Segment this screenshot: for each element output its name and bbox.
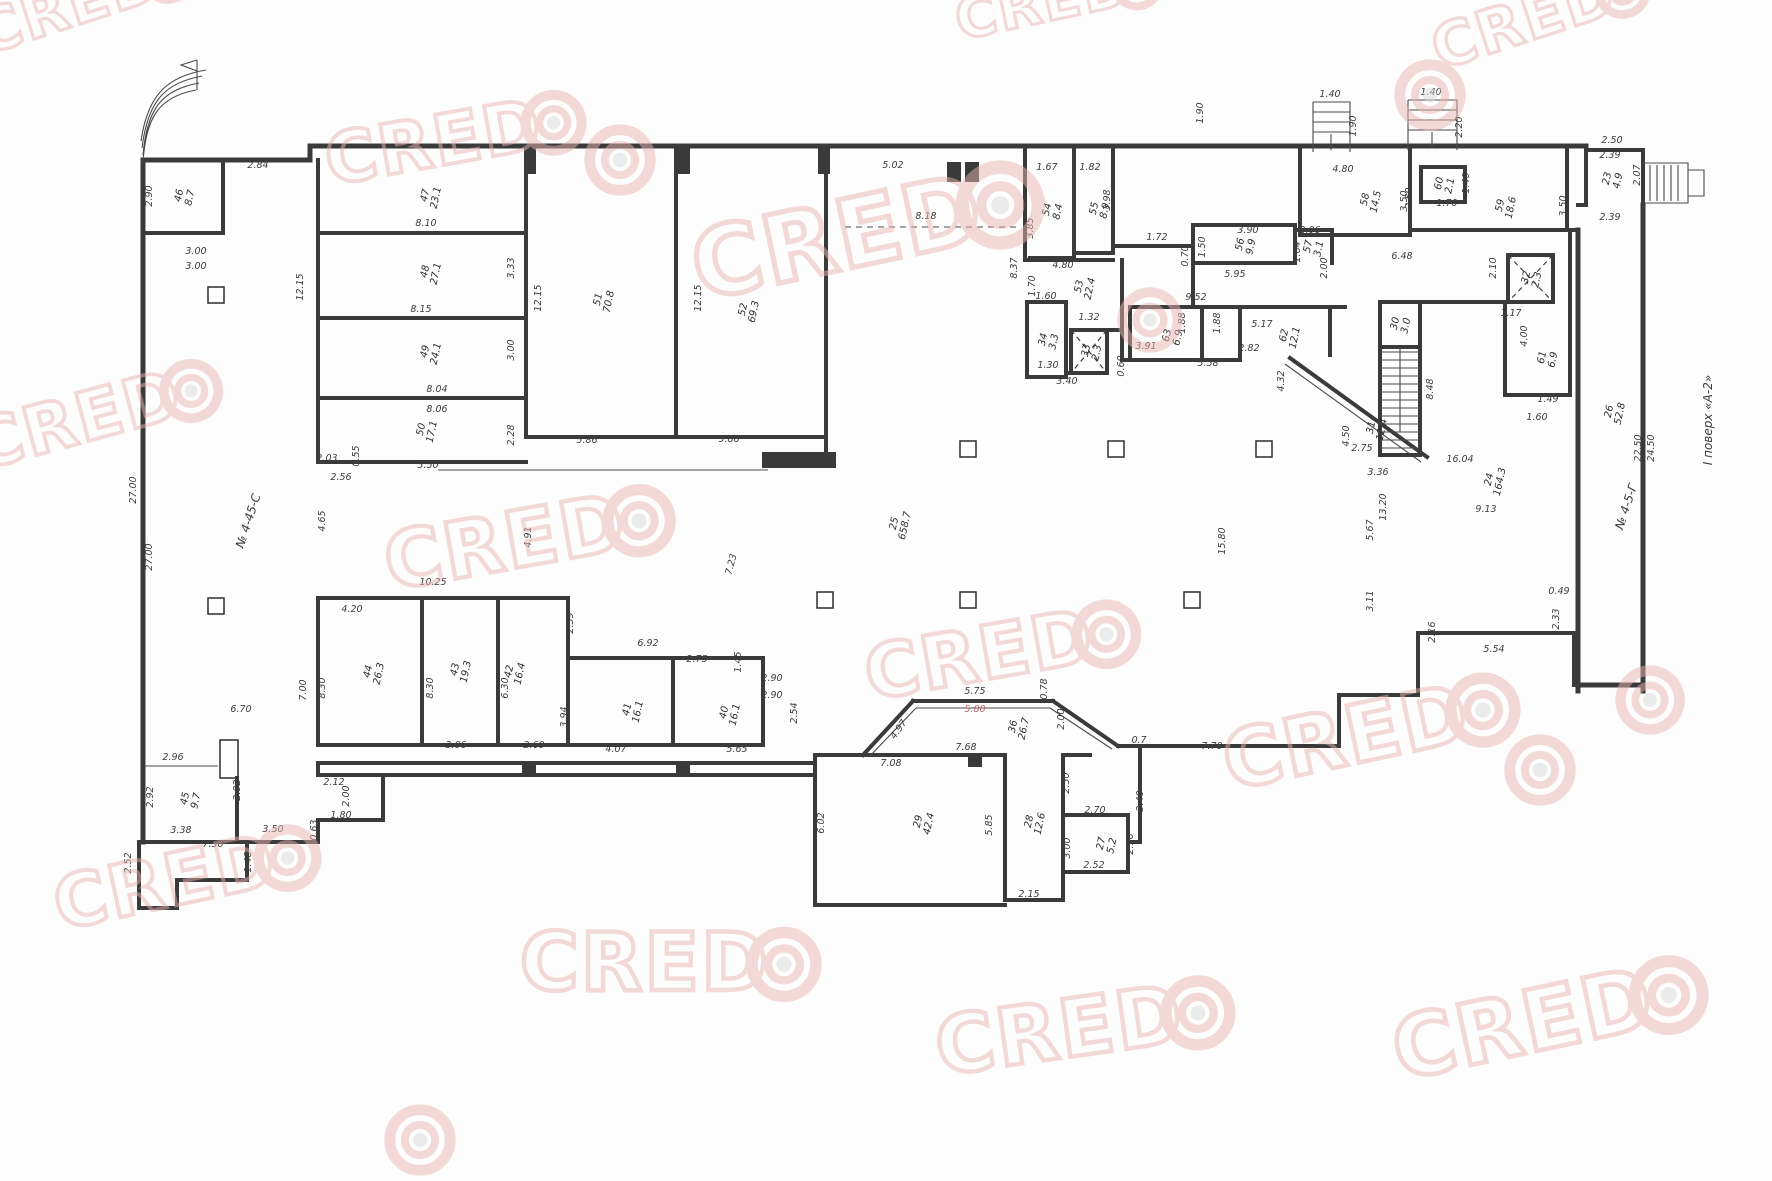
dimension-label: 2.92 xyxy=(145,786,156,807)
svg-text:CRED: CRED xyxy=(520,916,769,1009)
room-label: 275.2 xyxy=(1095,835,1120,855)
dimension-label: 2.75 xyxy=(686,654,707,665)
watermark-logo: CRED xyxy=(1384,938,1712,1100)
svg-text:CRED: CRED xyxy=(930,967,1190,1094)
dimension-label: 3.36 xyxy=(1367,467,1388,478)
room-label: 4827.1 xyxy=(418,259,444,285)
room-label: 5814.5 xyxy=(1358,187,1384,213)
room-label: 4723.1 xyxy=(418,183,444,209)
dimension-label: 7.23 xyxy=(724,553,740,576)
dimension-label: 7.68 xyxy=(955,742,976,753)
watermark-layer: CREDCREDCREDCREDCREDCREDCREDCREDCREDCRED… xyxy=(0,0,1712,1170)
room-label: 4319.3 xyxy=(448,657,474,683)
dimension-label: 24.50 xyxy=(1646,434,1657,461)
room-label: 3626.7 xyxy=(1006,714,1032,741)
room-label: 5017.1 xyxy=(414,417,440,443)
watermark-target xyxy=(1400,65,1460,125)
room-label: 5170.8 xyxy=(591,287,617,313)
dimension-label: 1.17 xyxy=(1500,308,1521,319)
plan-annotation: № 4-5-Г xyxy=(1612,481,1641,532)
dimension-label: 3.00 xyxy=(1062,837,1073,858)
dimension-label: 1.70 xyxy=(1436,198,1457,209)
dimension-label: 6.48 xyxy=(1391,251,1412,262)
dimension-label: 4.32 xyxy=(1276,370,1287,391)
structural-column xyxy=(1256,441,1272,457)
dimension-label: 2.82 xyxy=(1238,343,1259,354)
dimension-label: 12.15 xyxy=(295,273,306,300)
dimension-label: 2.90 xyxy=(761,690,782,701)
watermark-logo: CRED xyxy=(858,586,1143,718)
structural-column xyxy=(208,287,224,303)
dimension-label: 4.80 xyxy=(1052,260,1073,271)
svg-text:CRED: CRED xyxy=(1384,949,1663,1101)
watermark-target xyxy=(390,1110,450,1170)
dimension-label: 1.50 xyxy=(1197,236,1208,257)
dimension-label: 1.32 xyxy=(1078,312,1099,323)
dimension-label: 3.06 xyxy=(445,740,466,751)
dimension-label: 8.04 xyxy=(426,384,447,395)
dimension-label: 2.03 xyxy=(316,453,337,464)
dimension-label: 2.75 xyxy=(1351,443,1372,454)
watermark-target-icon xyxy=(955,160,1045,250)
svg-text:CRED: CRED xyxy=(0,355,190,486)
dimension-label: 2.52 xyxy=(1083,860,1104,871)
dimension-label: 2.06 xyxy=(1299,225,1320,236)
dimension-label: 16.04 xyxy=(1446,454,1473,465)
watermark-logo: CRED xyxy=(1215,656,1524,808)
dimension-label: 27.00 xyxy=(128,476,139,503)
dimension-label: 2.00 xyxy=(1056,708,1067,729)
room-label: 2942.4 xyxy=(911,809,937,835)
plan-annotation: № 4-45-С xyxy=(233,491,264,550)
room-label: 2652.8 xyxy=(1602,399,1628,425)
dimension-label: 0.55 xyxy=(351,445,362,466)
dimension-label: 2.39 xyxy=(1599,150,1620,161)
dimension-label: 8.06 xyxy=(426,404,447,415)
dimension-label: 9.13 xyxy=(1475,504,1496,515)
dimension-label: 1.60 xyxy=(1035,291,1056,302)
room-label: 5918.6 xyxy=(1493,193,1519,219)
dimension-label: 8.30 xyxy=(425,677,436,698)
dimension-label: 2.39 xyxy=(1599,212,1620,223)
svg-text:CRED: CRED xyxy=(378,478,633,609)
dimension-label: 2.10 xyxy=(1488,257,1499,278)
dimension-label: 5.85 xyxy=(984,814,995,835)
dimension-label: 1.60 xyxy=(1526,412,1547,423)
watermark-logo: CRED xyxy=(949,0,1165,54)
watermark-logo: CRED xyxy=(378,470,678,609)
dimension-label: 4.50 xyxy=(1341,425,1352,446)
svg-text:CRED: CRED xyxy=(46,818,284,947)
dimension-label: 2.16 xyxy=(1125,833,1136,854)
dimension-label: 22.50 xyxy=(1633,434,1644,461)
columns-group xyxy=(208,287,1272,614)
room-label: 2812.6 xyxy=(1022,809,1048,835)
watermark-logo: CRED xyxy=(930,961,1236,1094)
room-label: 25658.7 xyxy=(886,508,914,541)
dimension-label: 7.00 xyxy=(298,679,309,700)
dimension-label: 4.07 xyxy=(605,744,626,755)
dimension-label: 1.67 xyxy=(1036,162,1057,173)
room-label: 6212.1 xyxy=(1277,323,1303,349)
dimension-label: 2.70 xyxy=(1084,805,1105,816)
watermark-target-icon xyxy=(1400,65,1460,125)
dimension-label: 3.00 xyxy=(185,261,206,272)
room-label: 602.1 xyxy=(1433,175,1458,195)
dimension-label: 5.54 xyxy=(1483,644,1504,655)
watermark-logo: CRED xyxy=(520,916,816,1009)
dimension-label: 1.40 xyxy=(1319,89,1340,100)
dimension-label: 0.60 xyxy=(1116,355,1127,376)
dimension-label: 5.65 xyxy=(726,744,747,755)
svg-text:CRED: CRED xyxy=(319,83,549,202)
dimension-label: 2.56 xyxy=(330,472,351,483)
dimension-label: 2.00 xyxy=(1319,257,1330,278)
structural-column xyxy=(1184,592,1200,608)
dimension-label: 2.50 xyxy=(1601,135,1622,146)
dimension-label: 15.80 xyxy=(1217,527,1228,554)
watermark-target-icon xyxy=(254,824,322,892)
room-label: 5322.4 xyxy=(1072,274,1098,300)
svg-text:CRED: CRED xyxy=(0,0,169,69)
dimension-label: 2.39 xyxy=(565,612,576,633)
dimension-label: 12.15 xyxy=(533,284,544,311)
svg-text:CRED: CRED xyxy=(682,154,993,323)
dimension-label: 6.92 xyxy=(637,638,658,649)
watermark-target-icon xyxy=(390,1110,450,1170)
dimension-label: 4.00 xyxy=(1519,325,1530,346)
room-label: 24164.3 xyxy=(1481,464,1508,497)
dimension-label: 1.72 xyxy=(1146,232,1167,243)
dimension-label: 2.90 xyxy=(144,185,155,206)
dimension-label: 5.86 xyxy=(576,435,597,446)
dimension-label: 2.60 xyxy=(523,740,544,751)
dimension-label: 9.52 xyxy=(1185,292,1206,303)
dimension-label: 4.20 xyxy=(341,604,362,615)
watermark-logo: CRED xyxy=(0,345,227,486)
dimension-label: 5.86 xyxy=(718,434,739,445)
room-label: 4426.3 xyxy=(361,659,387,685)
dimension-label: 6.30 xyxy=(500,677,511,698)
watermark-target xyxy=(1510,740,1570,800)
dimension-label: 2.33 xyxy=(1551,608,1562,629)
dimension-label: 4.65 xyxy=(317,510,328,531)
watermark-target xyxy=(590,130,650,190)
dimension-label: 5.95 xyxy=(1224,269,1245,280)
dimension-label: 3.00 xyxy=(185,246,206,257)
dimension-label: 3.50 xyxy=(1558,195,1569,216)
dimension-label: 8.37 xyxy=(1009,257,1020,278)
dimension-label: 8.15 xyxy=(410,304,431,315)
dimension-label: 2.92 xyxy=(232,779,243,800)
dimension-label: 3.90 xyxy=(1237,225,1258,236)
dimension-label: 3.33 xyxy=(506,257,517,278)
dimension-label: 5.17 xyxy=(1251,319,1272,330)
floor-plan-page: 2.842.903.003.008.1012.153.338.153.008.0… xyxy=(0,0,1772,1181)
room-label: 322.3 xyxy=(1520,269,1545,289)
dimension-label: 1.40 xyxy=(1461,172,1472,193)
svg-text:CRED: CRED xyxy=(1215,666,1478,809)
dimension-label: 3.50 xyxy=(1399,190,1410,211)
dimension-label: 6.02 xyxy=(816,812,827,833)
dimension-label: 4.80 xyxy=(1332,164,1353,175)
dimension-label: 2.96 xyxy=(162,752,183,763)
structural-column xyxy=(1108,441,1124,457)
dimension-label: 2.54 xyxy=(789,702,800,723)
dimension-label: 8.30 xyxy=(317,677,328,698)
dimension-label: 1.30 xyxy=(1037,360,1058,371)
dimension-label: 3.00 xyxy=(506,339,517,360)
dimension-label: 8.10 xyxy=(415,218,436,229)
dimension-label: 1.90 xyxy=(1195,102,1206,123)
structural-column xyxy=(817,592,833,608)
watermark-target-icon xyxy=(1621,671,1680,730)
structural-column xyxy=(960,592,976,608)
dimension-label: 7.08 xyxy=(880,758,901,769)
room-label: 343.3 xyxy=(1037,331,1062,351)
dimension-label: 3.11 xyxy=(1365,590,1376,611)
room-label: 4116.1 xyxy=(620,697,646,723)
dimension-label: 1.45 xyxy=(733,651,744,672)
watermark-target xyxy=(1621,671,1680,730)
watermark-target-icon xyxy=(590,130,650,190)
dimension-label: 2.28 xyxy=(506,424,517,445)
room-label: 468.7 xyxy=(173,186,198,207)
room-label: 4924.1 xyxy=(418,339,444,365)
dimension-label: 2.16 xyxy=(1427,621,1438,642)
structural-column xyxy=(208,598,224,614)
dimension-label: 8.48 xyxy=(1425,378,1436,399)
dimension-label: 0.49 xyxy=(1548,586,1569,597)
dimension-label: 13.20 xyxy=(1378,493,1389,520)
watermark-logo: CRED xyxy=(1423,0,1656,84)
dimension-label: 1.90 xyxy=(1348,115,1359,136)
dimension-label: 5.80 xyxy=(964,704,985,715)
watermark-logo: CRED xyxy=(0,0,201,69)
room-label: 573.1 xyxy=(1302,238,1327,258)
plan-annotation: І поверх «А-2» xyxy=(1701,375,1715,466)
dimension-label: 1.80 xyxy=(330,810,351,821)
dimension-label: 2.84 xyxy=(247,160,268,171)
dimension-label: 2.00 xyxy=(341,785,352,806)
watermark-target-icon xyxy=(1445,672,1521,748)
watermark-target-icon xyxy=(1510,740,1570,800)
svg-text:CRED: CRED xyxy=(858,593,1101,718)
room-label: 569.9 xyxy=(1234,236,1259,256)
watermark-logo: CRED xyxy=(319,76,588,202)
dimension-label: 27.00 xyxy=(144,543,155,570)
room-label: 459.7 xyxy=(179,789,204,810)
dimension-label: 0.7 xyxy=(1131,735,1146,746)
watermark-logo: CRED xyxy=(682,142,1049,323)
dimension-label: 6.70 xyxy=(230,704,251,715)
dimension-label: 2.15 xyxy=(1018,889,1039,900)
dimension-label: 3.40 xyxy=(1056,376,1077,387)
dimension-label: 2.07 xyxy=(1632,164,1643,185)
dimension-label: 1.49 xyxy=(1537,394,1558,405)
dimension-label: 5.67 xyxy=(1365,519,1376,540)
room-label: 234.9 xyxy=(1601,170,1626,190)
dimension-label: 1.82 xyxy=(1079,162,1100,173)
structural-column xyxy=(960,441,976,457)
dimension-label: 2.50 xyxy=(1061,772,1072,793)
svg-text:CRED: CRED xyxy=(949,0,1136,54)
dimension-label: 0.70 xyxy=(1180,245,1191,266)
watermark-target-icon xyxy=(1628,955,1708,1035)
dimension-label: 1.88 xyxy=(1212,312,1223,333)
floor-plan-canvas: 2.842.903.003.008.1012.153.338.153.008.0… xyxy=(0,0,1772,1181)
dimension-label: 2.90 xyxy=(761,673,782,684)
room-label: 303.0 xyxy=(1389,315,1414,335)
dimension-label: 5.58 xyxy=(1197,358,1218,369)
dimension-label: 3.40 xyxy=(1135,790,1146,811)
dimension-label: 5.50 xyxy=(417,460,438,471)
room-label: 616.9 xyxy=(1536,349,1561,369)
dimension-label: 3.94 xyxy=(559,706,570,727)
room-label: 4016.1 xyxy=(717,700,743,726)
